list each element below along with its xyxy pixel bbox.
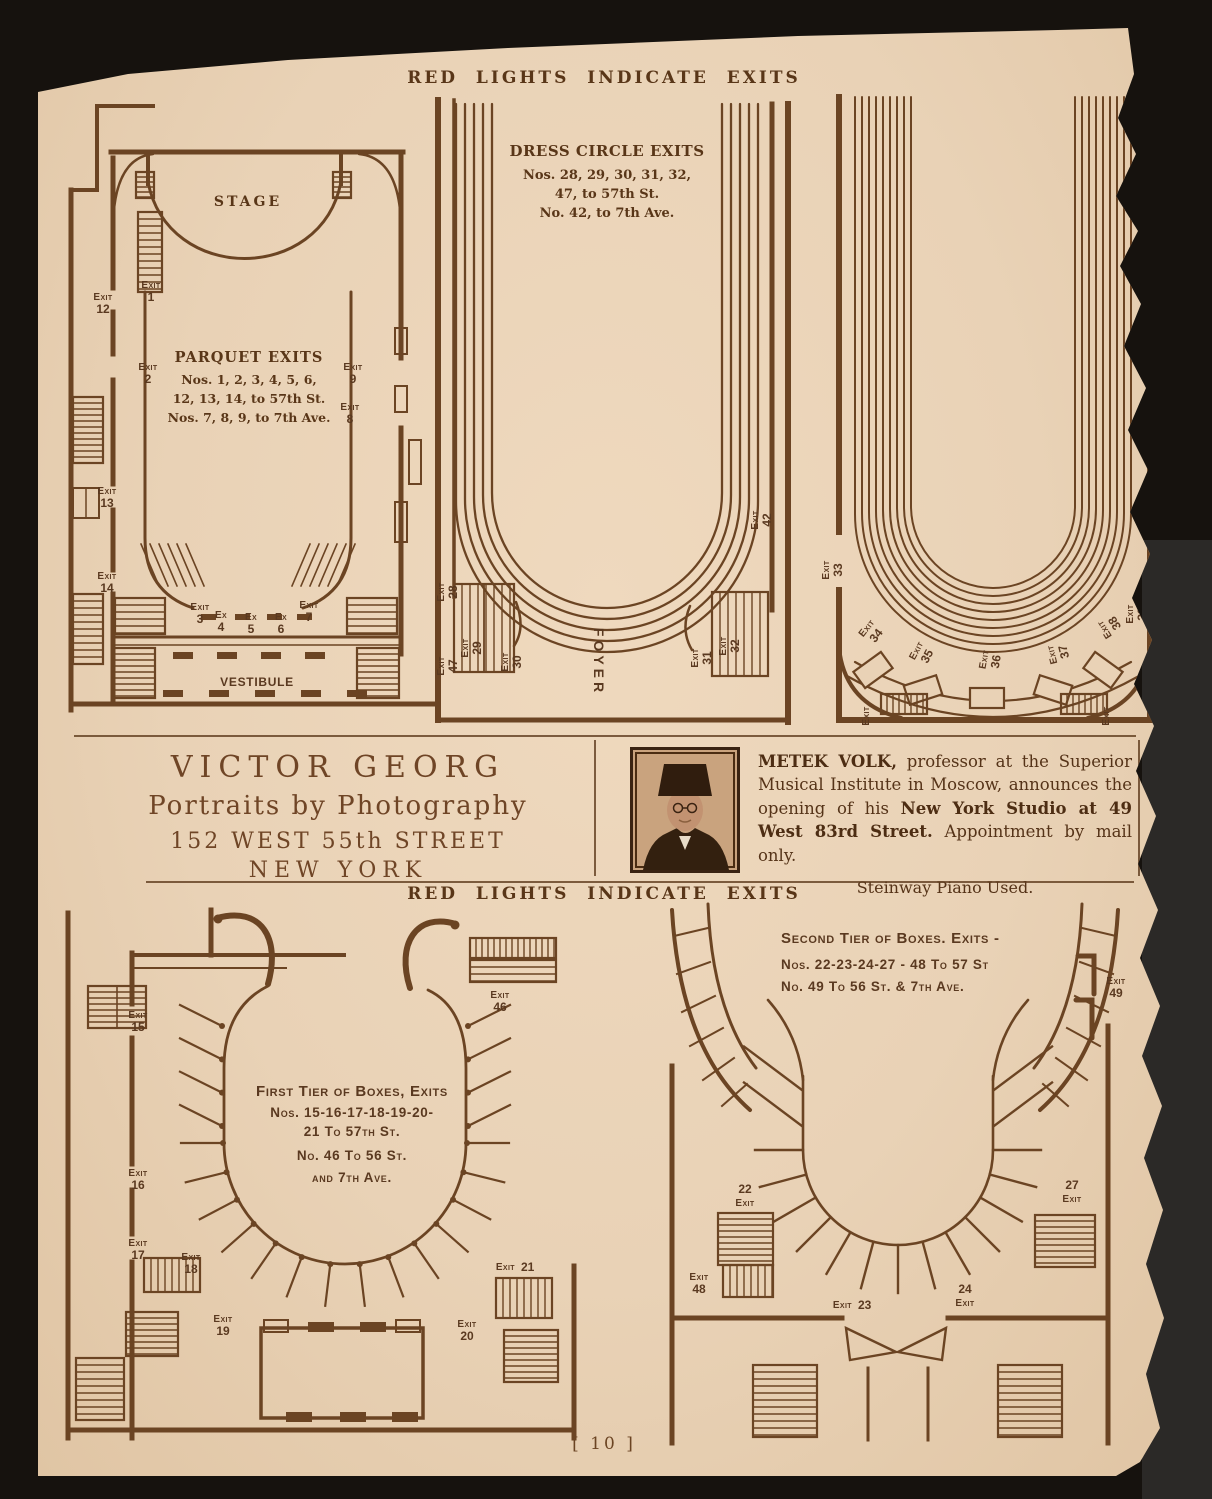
exit-9-label: Exit 9 [343,362,362,386]
exit-number: 9 [350,372,357,386]
metek-volk-text: METEK VOLK, professor at the Superior Mu… [758,750,1132,867]
exit-number: 27 [1065,1178,1079,1192]
exit-35-label: Exit 35 [907,640,937,668]
dress-circle-title: DRESS CIRCLE EXITS [509,142,704,160]
second-tier-line2: Nos. 22-23-24-27 - 48 To 57 St [781,957,989,972]
exit-number: 8 [347,412,354,426]
exit-12-label: Exit 12 [93,292,112,316]
exit-number: 47 [446,659,460,673]
exit-number: 13 [100,496,114,510]
stage-label: STAGE [214,194,282,210]
exit-31-label: Exit 31 [690,648,714,667]
exit-37-label: Exit 37 [1045,641,1073,666]
exit-number: 4 [218,620,225,634]
exit-number: 21 [521,1260,535,1274]
foyer-label: FOYER [591,628,607,696]
exit-number: 19 [216,1324,230,1338]
exit-22-label: 22 Exit [735,1182,754,1209]
exit-13-label: Exit 13 [97,486,116,510]
first-tier-line4: and 7th Ave. [312,1170,392,1185]
exit-number: 46 [493,1000,507,1014]
first-tier-title: First Tier of Boxes, Exits [256,1083,448,1100]
exit-18-label: Exit 18 [181,1252,200,1276]
parquet-exits-line2: 12, 13, 14, to 57th St. [173,391,326,406]
exit-number: 22 [738,1182,752,1196]
first-tier-floor-plan: First Tier of Boxes, Exits Nos. 15-16-17… [46,898,586,1446]
exit-27-label: 27 Exit [1062,1178,1081,1205]
scanned-program-page: RED LIGHTS INDICATE EXITS STAGE PARQUET … [0,0,1212,1499]
exit-number: 15 [131,1020,145,1034]
exit-number: 48 [692,1282,706,1296]
divider-rule-top [74,735,1136,737]
exit-number: 23 [858,1298,872,1312]
top-exits-heading: RED LIGHTS INDICATE EXITS [38,68,1170,88]
exit-30-label: Exit 30 [500,652,524,671]
exit-14-label: Exit 14 [97,571,116,595]
exit-word: Exit [955,1298,974,1309]
exit-number: 32 [728,639,742,653]
exit-number: 31 [700,651,714,665]
exit-number: 37 [1055,643,1072,660]
exit-5-label: Ex 5 [245,612,257,636]
second-tier-floor-plan: Second Tier of Boxes. Exits - Nos. 22-23… [650,898,1142,1446]
exit-number: 29 [470,641,484,655]
first-tier-line2: 21 To 57th St. [304,1124,401,1139]
vestibule-label: VESTIBULE [220,675,294,689]
exit-6-label: Ex 6 [275,612,287,636]
parquet-exits-line3: Nos. 7, 8, 9, to 7th Ave. [168,410,331,425]
exit-38-label: Exit 38 [1095,611,1126,640]
page-number: [ 10 ] [38,1434,1170,1454]
first-tier-line3: No. 46 To 56 St. [297,1148,407,1163]
exit-number: 5 [248,622,255,636]
exit-46-label: Exit 46 [490,990,509,1014]
exit-word: Exit [1101,706,1112,725]
exit-number: 33 [831,563,845,577]
exit-number: 17 [131,1248,145,1262]
exit-number: 1 [148,290,155,304]
exit-49-label: Exit 49 [1106,976,1125,1000]
exit-number: 49 [1109,986,1123,1000]
exit-7-label: Exit 7 [299,600,318,624]
exit-47-label: Exit 47 [436,656,460,675]
exit-number: 7 [306,610,313,624]
victor-georg-tagline: Portraits by Photography [98,791,578,821]
exit-number: 18 [184,1262,198,1276]
dress-circle-line2: 47, to 57th St. [555,187,659,202]
exit-number: 2 [145,372,152,386]
exit-8-label: Exit 8 [340,402,359,426]
exit-4-label: Ex 4 [215,610,227,634]
exit-32-label: Exit 32 [718,636,742,655]
exit-33-label: Exit 33 [821,560,845,579]
exit-number: 24 [958,1282,972,1296]
exit-2-label: Exit 2 [138,362,157,386]
ad-divider-left [594,740,596,876]
exit-29-label: Exit 29 [460,638,484,657]
portrait-fez-hat [658,764,712,796]
dress-circle-line3: No. 42, to 7th Ave. [540,206,675,221]
exit-16-label: Exit 16 [128,1168,147,1192]
metek-volk-name: METEK VOLK, [758,752,897,771]
first-tier-line1: Nos. 15-16-17-18-19-20- [270,1105,433,1120]
parquet-floor-plan: STAGE PARQUET EXITS Nos. 1, 2, 3, 4, 5, … [53,92,438,734]
program-page: RED LIGHTS INDICATE EXITS STAGE PARQUET … [38,26,1170,1476]
exit-number: 42 [760,513,774,527]
balcony-floor-plan: Exit 33 Exit 34 Exit 35 Exit 36 Exit 37 … [815,92,1165,734]
exit-20-label: Exit 20 [457,1319,476,1343]
exit-number: 14 [100,581,114,595]
exit-number: 28 [446,585,460,599]
exit-right-corner-label: Exit [1101,706,1112,725]
exit-48-label: Exit 48 [689,1272,708,1296]
parquet-exits-title: PARQUET EXITS [175,349,324,366]
exit-number: 12 [96,302,110,316]
exit-left-corner-label: Exit [861,706,872,725]
exit-23-label: Exit 23 [833,1298,872,1312]
exit-number: 16 [131,1178,145,1192]
victor-georg-name: VICTOR GEORG [98,750,578,785]
victor-georg-city: NEW YORK [98,858,578,883]
second-tier-line3: No. 49 To 56 St. & 7th Ave. [781,979,964,994]
parquet-exits-line1: Nos. 1, 2, 3, 4, 5, 6, [181,372,317,387]
exit-word: Exit [735,1198,754,1209]
exit-24-label: 24 Exit [955,1282,974,1309]
ad-divider-right [1138,740,1140,876]
exit-number: 3 [197,612,204,626]
victor-georg-ad: VICTOR GEORG Portraits by Photography 15… [98,750,578,883]
exit-word: Exit [861,706,872,725]
metek-volk-ad: METEK VOLK, professor at the Superior Mu… [758,750,1132,900]
dress-circle-line1: Nos. 28, 29, 30, 31, 32, [523,168,691,183]
second-tier-title: Second Tier of Boxes. Exits - [781,930,1000,947]
exit-34-label: Exit 34 [857,617,888,647]
metek-volk-portrait [630,747,740,873]
exit-21-label: Exit 21 [496,1260,535,1274]
exit-number: 6 [278,622,285,636]
svg-text:FOYER: FOYER [591,628,607,696]
exit-number: 20 [460,1329,474,1343]
exit-word: Exit [496,1262,515,1273]
exit-word: Exit [1062,1194,1081,1205]
divider-rule-bottom [146,881,1134,883]
exit-19-label: Exit 19 [213,1314,232,1338]
exit-number: 30 [510,655,524,669]
exit-word: Exit [833,1300,852,1311]
exit-number: 36 [988,653,1004,669]
dress-circle-floor-plan: DRESS CIRCLE EXITS Nos. 28, 29, 30, 31, … [428,92,813,734]
victor-georg-address: 152 WEST 55th STREET [98,829,578,854]
